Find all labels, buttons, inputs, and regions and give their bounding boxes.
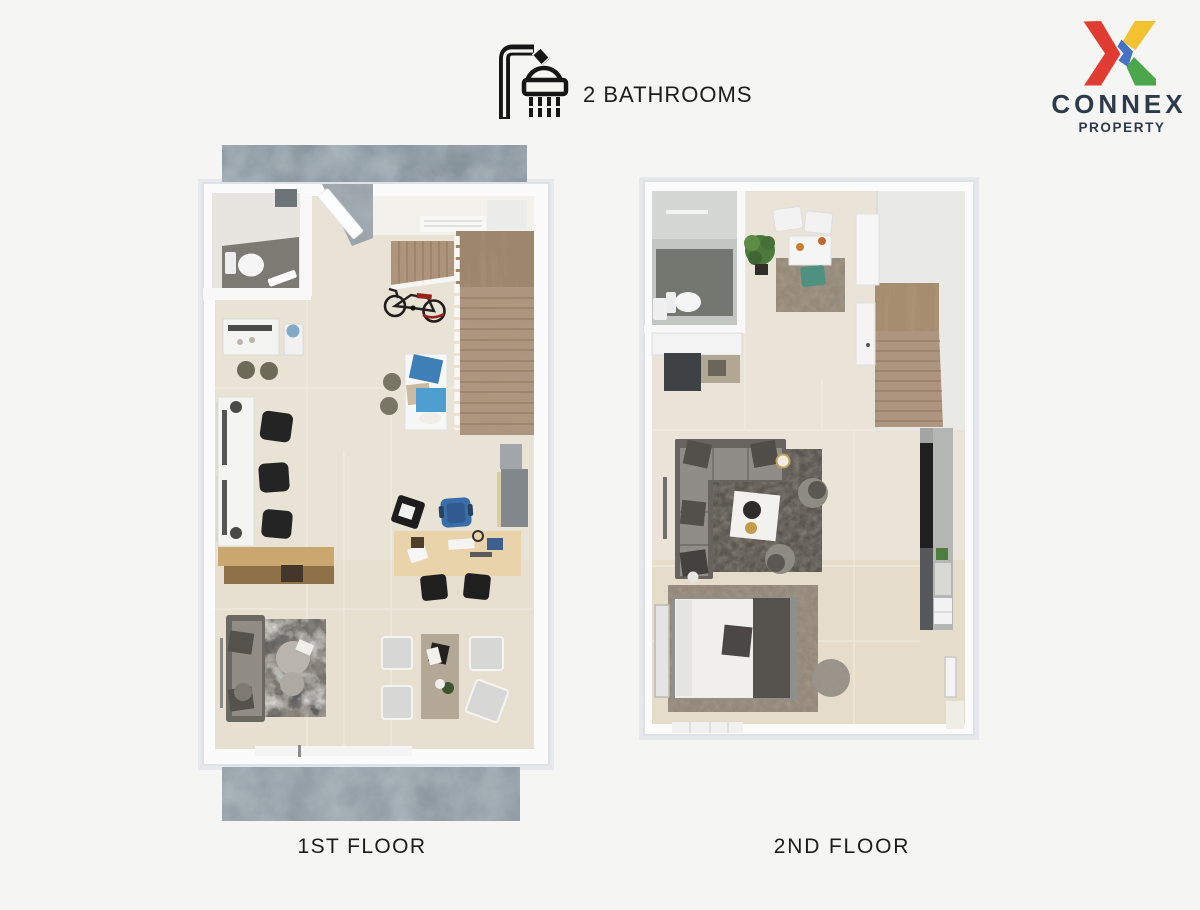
svg-text:CONNEX: CONNEX: [1051, 89, 1186, 119]
svg-text:1ST FLOOR: 1ST FLOOR: [298, 835, 427, 858]
svg-text:PROPERTY: PROPERTY: [1078, 120, 1165, 135]
svg-text:2ND FLOOR: 2ND FLOOR: [774, 835, 910, 858]
svg-text:2 BATHROOMS: 2 BATHROOMS: [583, 82, 753, 107]
